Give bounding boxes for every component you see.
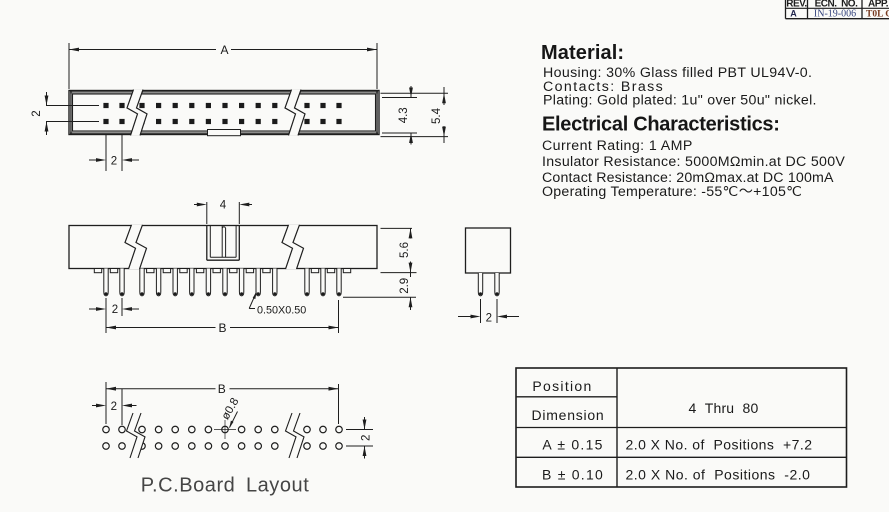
svg-text:T0L CHK: T0L CHK (866, 10, 889, 20)
svg-text:Current Rating: 1 AMP: Current Rating: 1 AMP (542, 138, 693, 154)
svg-text:Dimension: Dimension (532, 407, 605, 423)
svg-text:Operating Temperature: -55℃～+1: Operating Temperature: -55℃～+105℃ (542, 184, 802, 200)
svg-text:A: A (790, 8, 797, 18)
svg-text:B: B (218, 382, 226, 396)
svg-text:Insulator Resistance: 5000MΩmi: Insulator Resistance: 5000MΩmin.at DC 50… (542, 154, 845, 170)
svg-text:Position: Position (532, 378, 592, 394)
svg-text:0.50X0.50: 0.50X0.50 (257, 305, 306, 317)
svg-text:Material:: Material: (541, 42, 624, 64)
svg-text:5.4: 5.4 (431, 107, 443, 124)
svg-text:P.C.Board Layout: P.C.Board Layout (141, 475, 310, 497)
svg-text:B ± 0.10: B ± 0.10 (542, 466, 604, 482)
svg-text:2: 2 (486, 313, 492, 325)
svg-text:A: A (220, 43, 228, 57)
svg-text:Plating: Gold plated: 1u" over: Plating: Gold plated: 1u" over 50u" nick… (543, 92, 817, 108)
svg-text:B: B (218, 321, 226, 335)
svg-text:2: 2 (361, 435, 373, 441)
svg-text:4.3: 4.3 (398, 107, 410, 123)
svg-text:APP.: APP. (868, 0, 889, 9)
svg-text:4: 4 (220, 200, 227, 212)
svg-text:2: 2 (112, 304, 118, 316)
svg-text:2.0 X No. of Positions +7.2: 2.0 X No. of Positions +7.2 (626, 437, 813, 453)
svg-text:2.9: 2.9 (399, 278, 411, 294)
svg-text:2: 2 (111, 156, 117, 168)
svg-text:4 Thru 80: 4 Thru 80 (689, 400, 759, 416)
svg-text:2.0 X No. of Positions -2.0: 2.0 X No. of Positions -2.0 (626, 466, 811, 482)
svg-text:5.6: 5.6 (399, 242, 411, 258)
svg-text:2: 2 (111, 401, 117, 413)
svg-text:Electrical Characteristics:: Electrical Characteristics: (542, 114, 780, 136)
svg-text:2: 2 (31, 110, 43, 116)
svg-text:A ± 0.15: A ± 0.15 (542, 437, 603, 453)
svg-text:IN-19-006: IN-19-006 (814, 9, 856, 20)
